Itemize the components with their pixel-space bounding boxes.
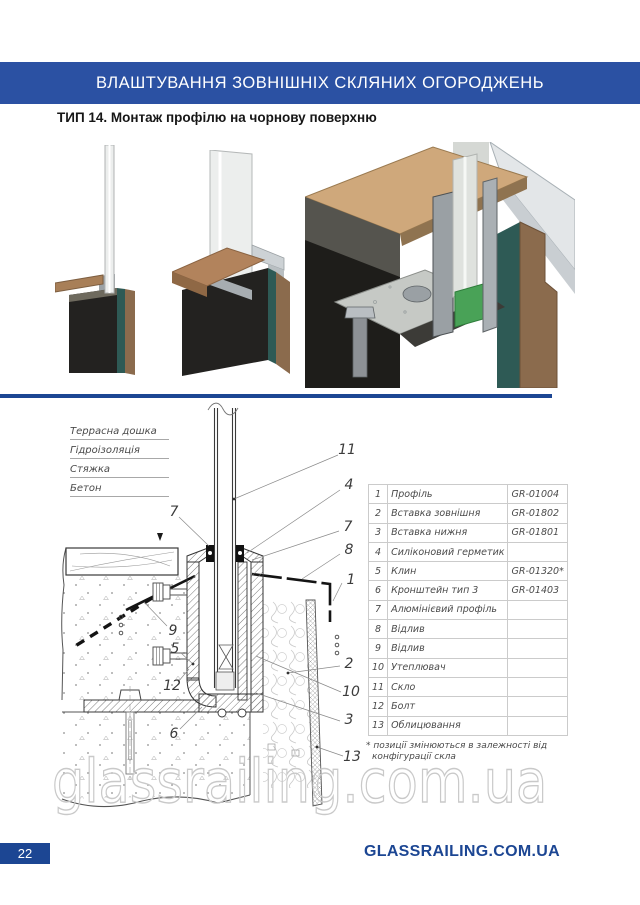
table-row: 13Облицювання xyxy=(369,716,568,735)
callout-12: 12 xyxy=(163,678,181,694)
table-row: 5КлинGR-01320* xyxy=(369,562,568,581)
table-row: 8Відлив xyxy=(369,620,568,639)
level-arrow xyxy=(157,533,163,541)
table-row: 3Вставка нижняGR-01801 xyxy=(369,523,568,542)
table-row: 9Відлив xyxy=(369,639,568,658)
callout-2: 2 xyxy=(345,656,354,672)
callout-4: 4 xyxy=(345,477,354,493)
callout-10: 10 xyxy=(342,684,360,700)
table-row: 6Кронштейн тип 3GR-01403 xyxy=(369,581,568,600)
footer-site-link[interactable]: GLASSRAILING.COM.UA xyxy=(364,843,560,861)
document-page: { "header": { "title": "ВЛАШТУВАННЯ ЗОВН… xyxy=(0,0,640,905)
insert-hole xyxy=(238,551,242,555)
table-row: 12Болт xyxy=(369,697,568,716)
table-row: 2Вставка зовнішняGR-01802 xyxy=(369,504,568,523)
callout-5: 5 xyxy=(171,641,180,657)
callout-11: 11 xyxy=(338,442,356,458)
callout-3: 3 xyxy=(345,712,354,728)
callout-8: 8 xyxy=(345,542,354,558)
callout-7-right: 7 xyxy=(344,519,353,535)
table-row: 10Утеплювач xyxy=(369,658,568,677)
table-row: 1ПрофільGR-01004 xyxy=(369,485,568,504)
table-row: 4Силіконовий герметик xyxy=(369,542,568,561)
page-number-badge: 22 xyxy=(0,843,50,864)
setting-block xyxy=(216,672,234,690)
callout-6: 6 xyxy=(170,726,179,742)
parts-table: 1ПрофільGR-01004 2Вставка зовнішняGR-018… xyxy=(368,484,568,736)
callout-1: 1 xyxy=(347,572,356,588)
terrace-board-section xyxy=(66,548,178,575)
table-row: 7Алюмінієвий профіль xyxy=(369,600,568,619)
callout-9: 9 xyxy=(169,623,178,639)
table-row: 11Скло xyxy=(369,677,568,696)
bracket-base-plate xyxy=(84,700,199,712)
page-number: 22 xyxy=(18,846,32,861)
callout-7-left: 7 xyxy=(170,504,179,520)
drip-drops-right xyxy=(335,635,339,655)
watermark: glassrailing.com.ua xyxy=(52,752,547,812)
insert-hole xyxy=(208,551,212,555)
